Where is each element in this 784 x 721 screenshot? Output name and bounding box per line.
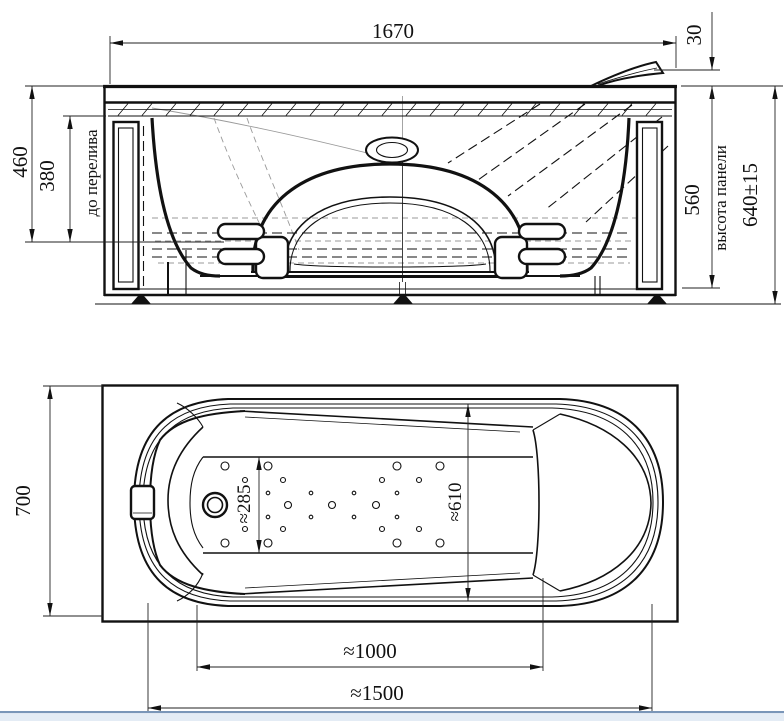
rim-handle-plan [131,486,154,519]
dim-label-1500: ≈1500 [350,681,404,705]
dim-label-1000: ≈1000 [343,639,397,663]
bathtub-technical-drawing: 1670 30 460 380 до перелива [0,0,784,721]
drain-plan [203,493,227,517]
dimension-overall-length: 1670 [110,19,676,84]
dim-label-610: ≈610 [445,483,466,522]
panel-height-note-label: высота панели [711,145,730,251]
dim-label-560: 560 [680,184,704,216]
legs-and-feet [95,282,781,304]
window-edge-line [0,711,784,713]
overflow-drain-front [366,138,418,163]
drawing-canvas: 1670 30 460 380 до перелива [0,0,784,721]
headrest-front [251,164,529,278]
dimension-inner-width: ≈610 [445,404,471,601]
dimension-inner-length: ≈1500 [148,603,652,711]
window-edge-fill [0,713,784,721]
dimension-depth-to-overflow: 380 до перелива [35,116,106,242]
dim-label-640: 640±15 [738,163,762,227]
window-edge-bar [0,711,784,721]
front-elevation-view: 1670 30 460 380 до перелива [8,12,783,304]
dim-label-1670: 1670 [372,19,414,43]
dim-label-380: 380 [35,160,59,192]
spout-icon [591,62,663,86]
dimension-overall-width: 700 [11,386,103,616]
overflow-note-label: до перелива [82,129,101,216]
dim-label-285: ≈285 [234,485,255,524]
dimension-floor-length: ≈1000 [197,578,543,671]
dim-label-460: 460 [8,146,32,178]
dimension-floor-width: ≈285 [234,457,262,553]
plan-view: 700 ≈285 ≈610 ≈1000 [11,386,678,712]
left-side-panel [114,122,139,289]
right-side-panel [637,122,662,289]
dim-label-700: 700 [11,485,35,517]
dim-label-30: 30 [682,25,706,46]
